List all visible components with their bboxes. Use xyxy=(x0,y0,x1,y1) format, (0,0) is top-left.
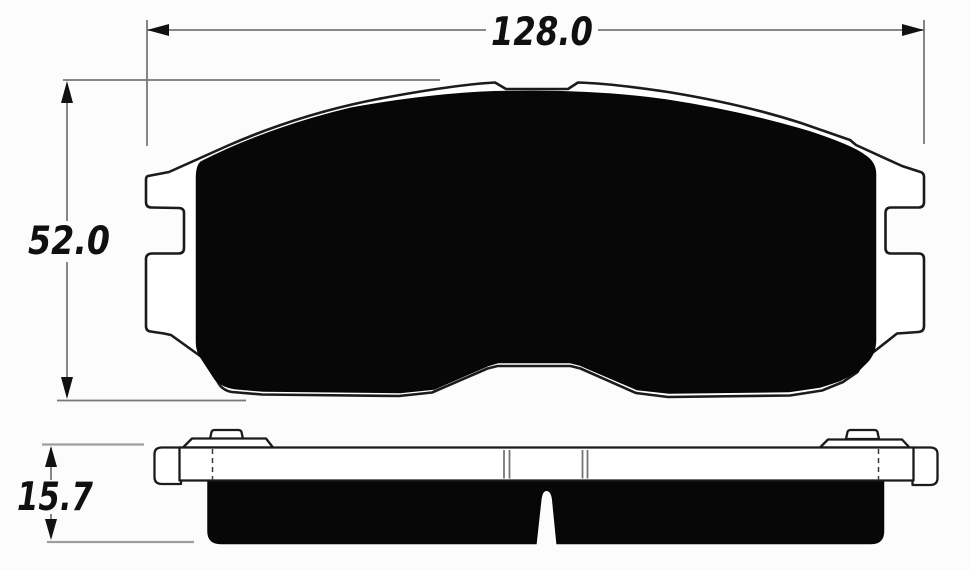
left-clip xyxy=(183,439,273,448)
front-view xyxy=(146,83,924,398)
thickness-dimension-label: 15.7 xyxy=(17,475,94,520)
technical-drawing: 128.0 52.0 15.7 xyxy=(0,0,970,570)
right-clip-rivet xyxy=(846,430,879,439)
width-dimension-label: 128.0 xyxy=(491,10,593,55)
width-arrowhead-left-icon xyxy=(147,24,169,36)
thickness-arrowhead-bottom-icon xyxy=(45,519,57,540)
width-arrowhead-right-icon xyxy=(902,24,924,36)
thickness-arrowhead-top-icon xyxy=(45,446,57,467)
height-arrowhead-bottom-icon xyxy=(61,377,73,399)
left-plate-end-cap xyxy=(155,448,182,485)
height-dimension-label: 52.0 xyxy=(28,219,110,264)
drawing-canvas: 128.0 52.0 15.7 xyxy=(0,0,970,570)
friction-material-front xyxy=(197,91,876,393)
right-plate-end-cap xyxy=(913,448,938,486)
side-view xyxy=(155,430,938,546)
backing-plate-side xyxy=(180,448,914,481)
right-clip xyxy=(820,440,910,448)
height-arrowhead-top-icon xyxy=(61,81,73,103)
